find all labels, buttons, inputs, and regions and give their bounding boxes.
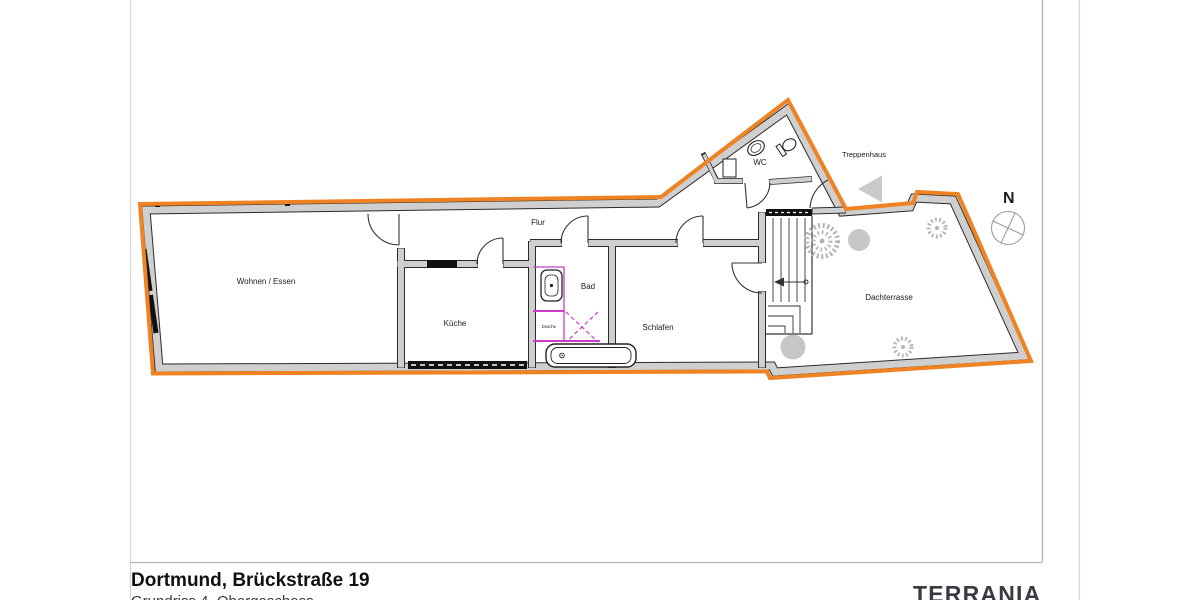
plan-subtitle: Grundriss 4. Obergeschoss — [131, 593, 314, 600]
north-label: N — [1003, 190, 1015, 207]
room-label-flur: Flur — [531, 218, 545, 227]
bathtub-drain-dot — [561, 355, 562, 356]
door-swing-living — [368, 214, 399, 245]
staircase — [766, 216, 812, 334]
tree-round-1 — [848, 229, 870, 251]
stairwell-arrow-icon — [858, 176, 882, 203]
north-compass: N — [986, 190, 1030, 250]
tree-round-2 — [781, 335, 806, 360]
door-swing-kitchen — [477, 238, 503, 264]
outer-walls — [146, 109, 1024, 372]
tree-speckled-large — [807, 226, 838, 257]
room-label-wohnen-essen: Wohnen / Essen — [237, 277, 296, 286]
room-label-dachterrasse: Dachterrasse — [865, 293, 913, 302]
floorplan-page: N Wohnen / Essen Küche Flur Bad Dusche S… — [0, 0, 1200, 600]
door-swing-bath — [561, 216, 588, 243]
tree-speckled-small-1 — [929, 220, 946, 237]
wc-shaft — [723, 159, 736, 177]
room-label-schlafen: Schlafen — [642, 323, 673, 332]
outer-wall-fill — [146, 109, 1024, 372]
room-label-wc: WC — [753, 158, 767, 167]
floor-plan-drawing: N Wohnen / Essen Küche Flur Bad Dusche S… — [0, 0, 1200, 600]
room-label-dusche: Dusche — [542, 324, 557, 329]
tree-speckled-small-2 — [895, 339, 912, 356]
door-swing-wc — [747, 183, 770, 208]
room-label-treppenhaus: Treppenhaus — [842, 150, 886, 159]
apartment-outline — [140, 100, 1031, 378]
washbasin-drain — [550, 284, 553, 287]
wc-toilet — [776, 136, 798, 157]
page-frame — [131, 0, 1080, 600]
interior-walls — [397, 153, 846, 368]
door-swing-bedroom — [676, 216, 703, 243]
interior-wall-fills — [398, 155, 846, 368]
door-leaf-wc — [745, 183, 747, 208]
address-title: Dortmund, Brückstraße 19 — [131, 570, 370, 592]
room-label-kueche: Küche — [444, 319, 467, 328]
room-label-bad: Bad — [581, 282, 595, 291]
stair-direction-arrow-icon — [774, 278, 784, 287]
wall-niche — [427, 260, 457, 268]
interior-wall-edges — [397, 153, 846, 368]
compass-rose-icon — [986, 206, 1030, 250]
stair-treads — [768, 218, 805, 333]
door-swing-terrace — [732, 263, 762, 293]
brand-logo: TERRANIA — [913, 581, 1041, 600]
outer-wall-edge — [146, 109, 1024, 372]
